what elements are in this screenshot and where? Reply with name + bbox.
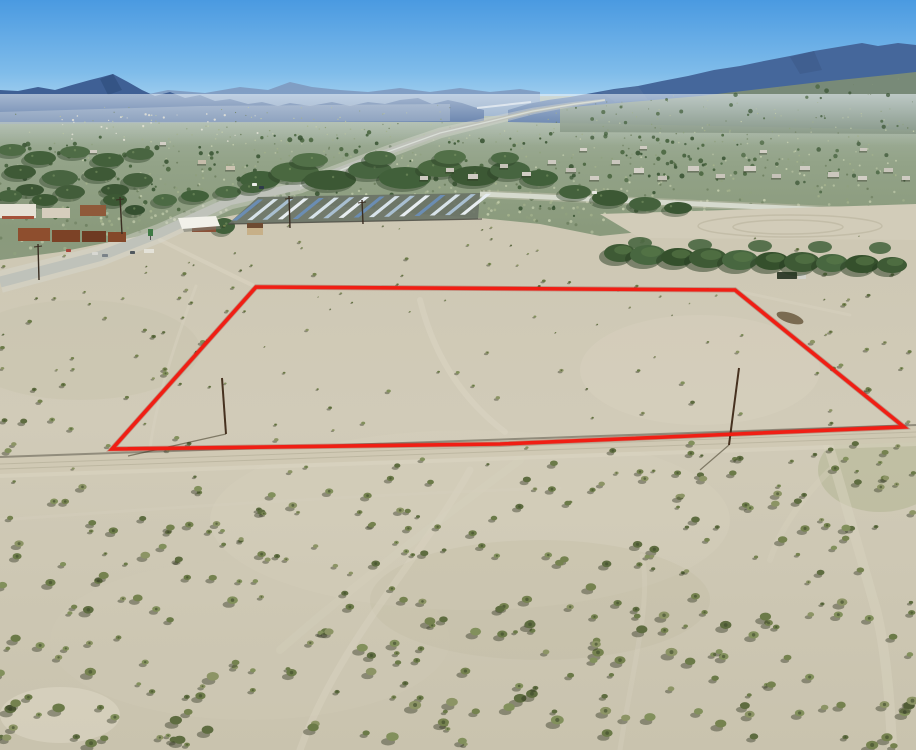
haze-layer: [0, 94, 916, 146]
solar-farm: [228, 193, 491, 224]
scene-svg: [0, 0, 916, 750]
aerial-photo: [0, 0, 916, 750]
